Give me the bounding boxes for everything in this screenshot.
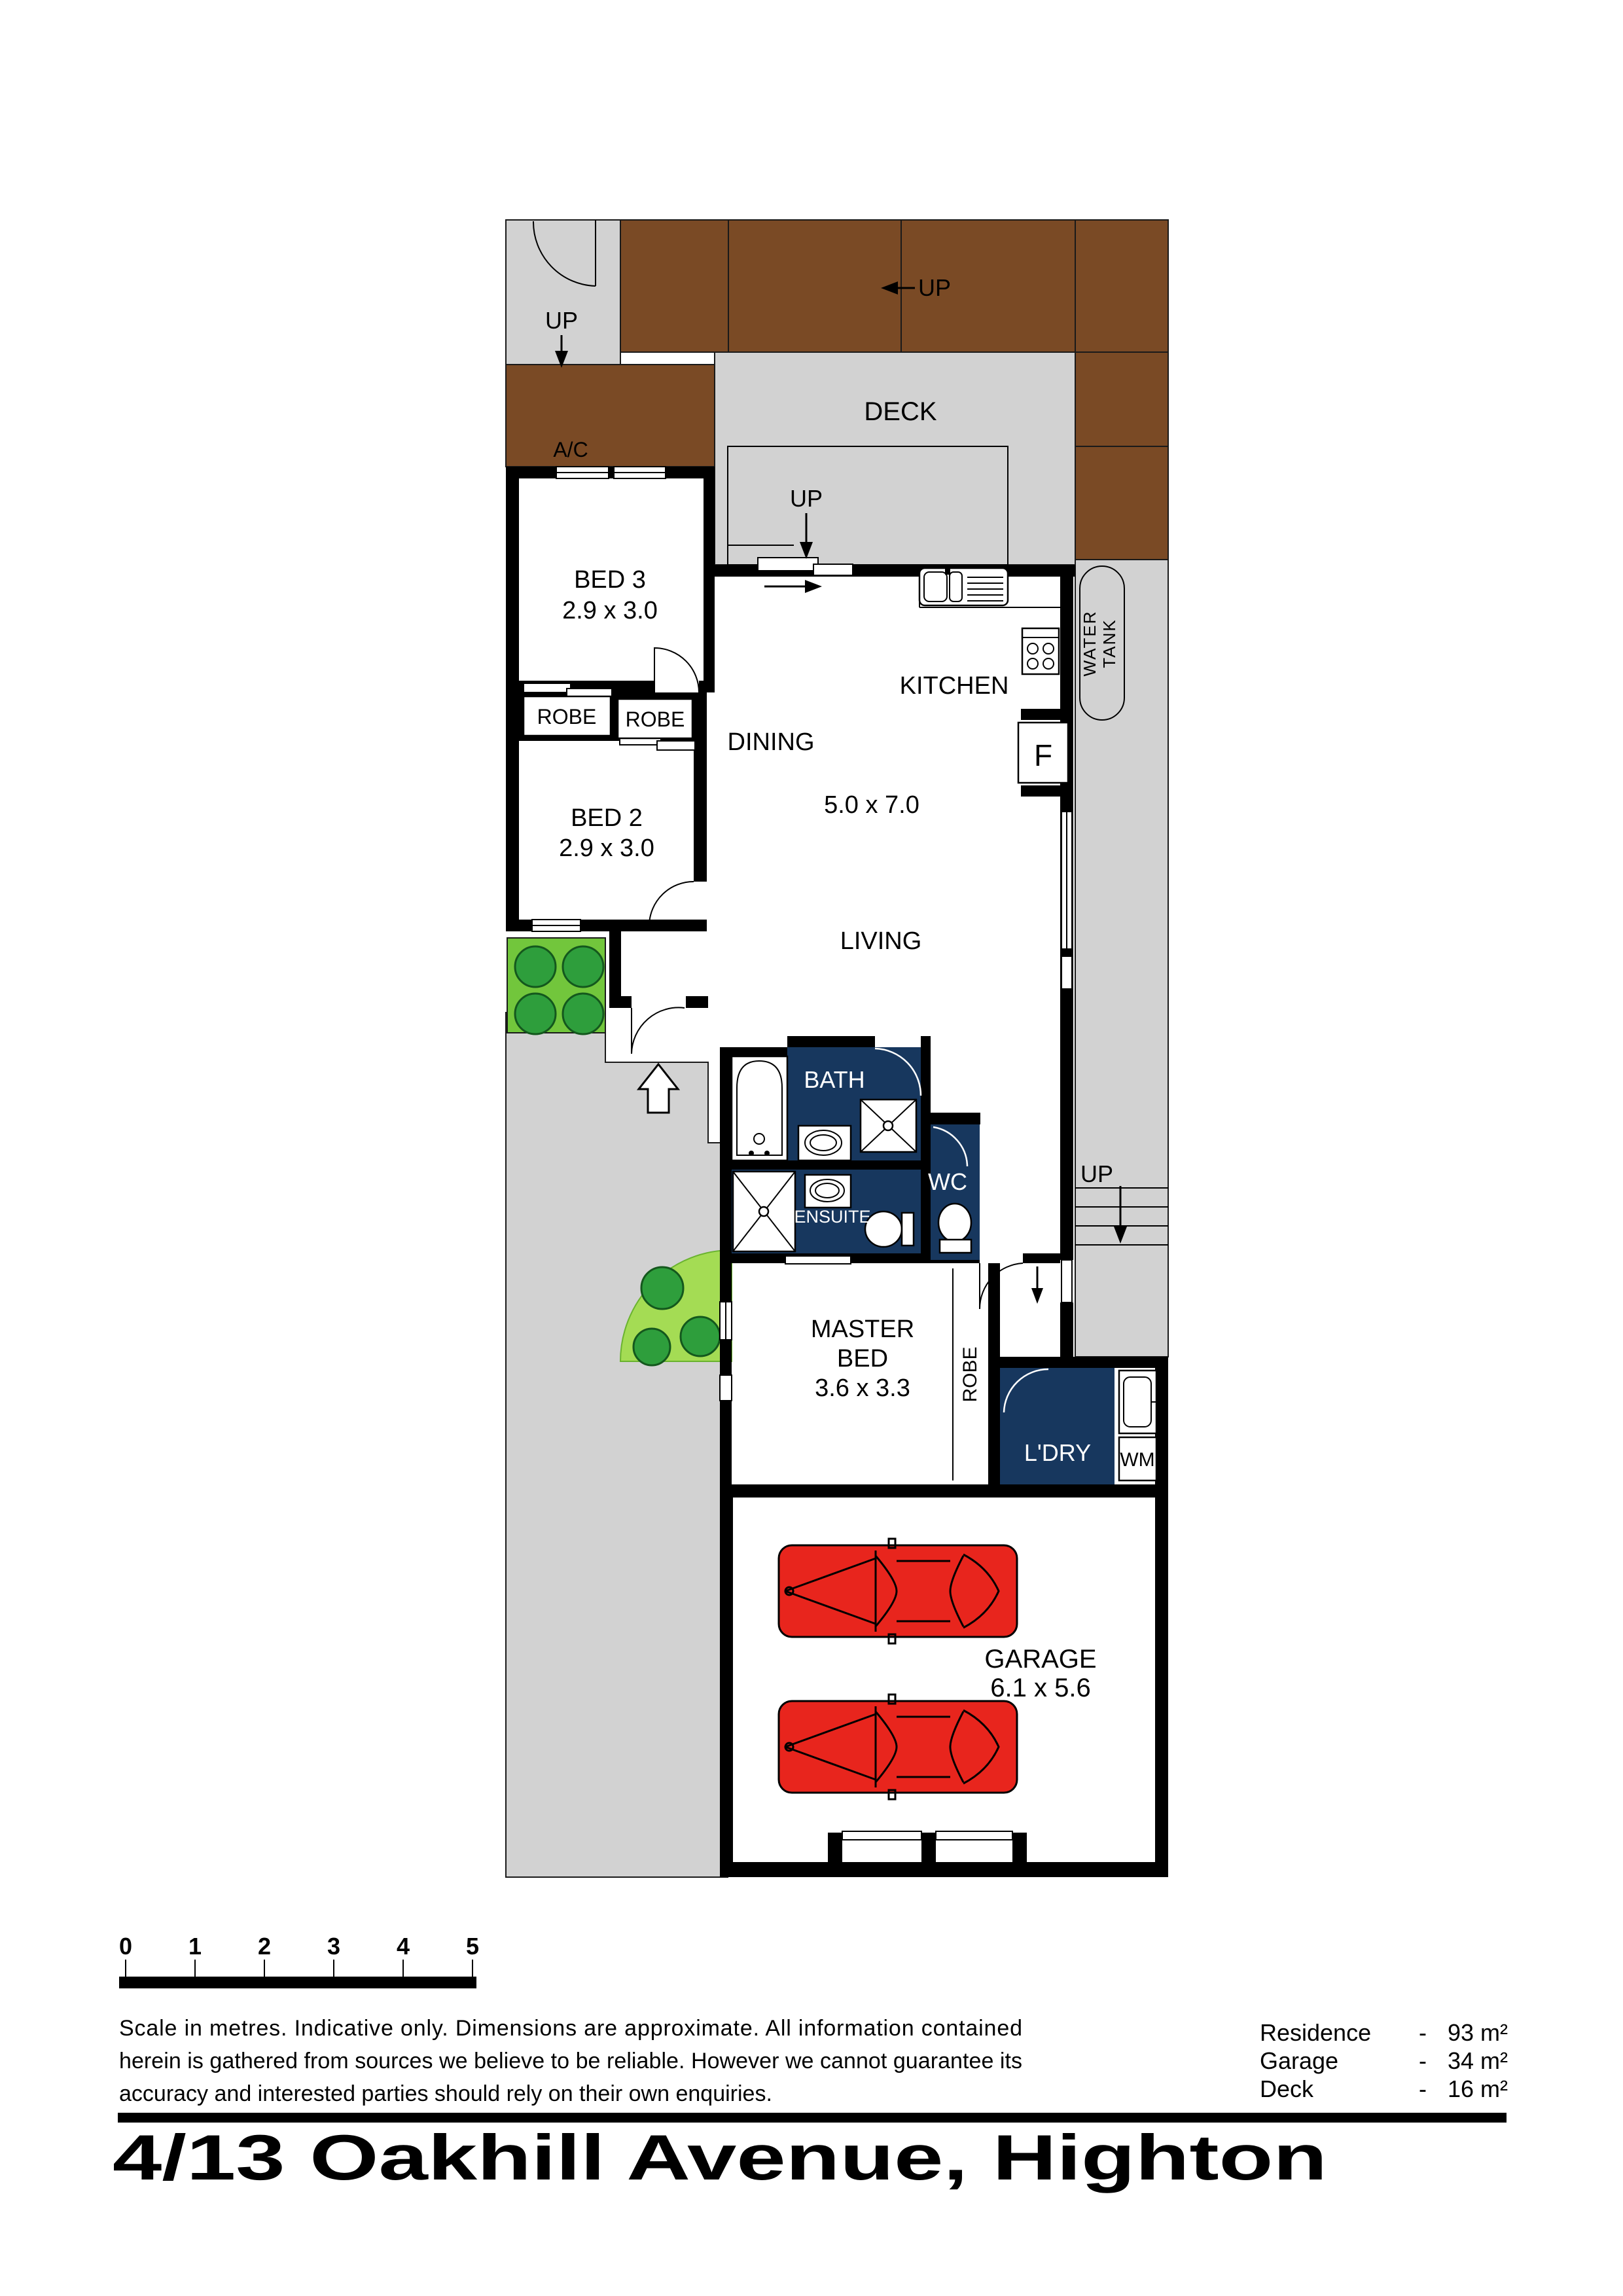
deck-up-label: UP <box>918 274 951 301</box>
page-title: 4/13 Oakhill Avenue, Highton <box>113 2121 1327 2193</box>
deck-entry-up-label: UP <box>790 485 823 512</box>
svg-text:TANK: TANK <box>1099 619 1119 668</box>
shrub <box>563 946 603 987</box>
kitchen-sink <box>919 568 1008 605</box>
porch <box>506 220 620 365</box>
footer: 0 1 2 3 4 5 Scale in metres. Indicative … <box>113 1933 1508 2193</box>
area-value: 93 m² <box>1448 2019 1508 2046</box>
areas-list: Residence - 93 m² Garage - 34 m² Deck - … <box>1260 2019 1508 2102</box>
area-label: Garage <box>1260 2047 1338 2074</box>
area-label: Residence <box>1260 2019 1371 2046</box>
robe-label: ROBE <box>626 708 685 731</box>
scale-tick-label: 5 <box>466 1933 479 1960</box>
floorplan-canvas: UP UP DECK A/C UP BED 3 2.9 x 3.0 ROBE R… <box>0 0 1623 2296</box>
scale-tick-label: 4 <box>397 1933 410 1960</box>
sliding-door <box>813 564 853 575</box>
garage-label: GARAGE <box>984 1645 1096 1674</box>
kitchen-label: KITCHEN <box>900 672 1009 700</box>
garage-dims: 6.1 x 5.6 <box>990 1674 1090 1702</box>
scale-tick-label: 2 <box>258 1933 271 1960</box>
bath-shower <box>861 1100 916 1152</box>
disclaimer-line: Scale in metres. Indicative only. Dimens… <box>119 2016 1022 2041</box>
area-value: 16 m² <box>1448 2075 1508 2102</box>
area-label: Deck <box>1260 2075 1314 2102</box>
sink-tap <box>945 567 950 575</box>
fridge-label: F <box>1034 738 1052 772</box>
master-dims: 3.6 x 3.3 <box>815 1374 910 1402</box>
area-dash: - <box>1419 2047 1427 2074</box>
scale-bar: 0 1 2 3 4 5 <box>119 1933 479 1988</box>
shrub <box>563 994 603 1034</box>
shrub <box>633 1329 670 1365</box>
ensuite-label: ENSUITE <box>794 1207 870 1227</box>
water-tank-label: WATER TANK <box>1080 611 1119 677</box>
ensuite-toilet <box>865 1211 914 1247</box>
car <box>779 1539 1017 1643</box>
living-dims: 5.0 x 7.0 <box>824 791 919 819</box>
scale-tick-label: 1 <box>188 1933 202 1960</box>
svg-text:ROBE: ROBE <box>959 1346 981 1402</box>
bed3-door <box>654 648 699 692</box>
deck-grey <box>715 352 1075 565</box>
laundry-label: L'DRY <box>1024 1439 1091 1466</box>
disclaimer-line: accuracy and interested parties should r… <box>119 2081 772 2106</box>
bed2-label: BED 2 <box>571 804 643 832</box>
floorplan-page: { "colors": { "navy": "#17375E", "brown"… <box>0 0 1623 2296</box>
area-dash: - <box>1419 2075 1427 2102</box>
disclaimer-line: herein is gathered from sources we belie… <box>119 2049 1022 2073</box>
car <box>779 1695 1017 1799</box>
area-dash: - <box>1419 2019 1427 2046</box>
wc-label: WC <box>928 1168 967 1195</box>
robe-label: ROBE <box>537 705 597 728</box>
scale-tick-label: 0 <box>119 1933 132 1960</box>
scale-tick-label: 3 <box>327 1933 340 1960</box>
sliding-door <box>758 558 818 571</box>
shrub <box>641 1267 683 1309</box>
shrub <box>515 946 556 987</box>
shrub <box>515 994 556 1034</box>
master-door <box>980 1263 1023 1309</box>
deck-label: DECK <box>864 397 936 426</box>
deck-left <box>506 365 715 467</box>
deck-right-column <box>1075 352 1168 560</box>
bed3-dims: 2.9 x 3.0 <box>562 597 658 624</box>
bed2-door <box>649 882 694 925</box>
stairs-up-label: UP <box>1080 1160 1113 1187</box>
ensuite-shower <box>733 1172 795 1251</box>
stove <box>1022 628 1059 674</box>
master-label-1: MASTER <box>811 1316 914 1343</box>
porch-up-label: UP <box>545 307 578 334</box>
front-door <box>632 1007 685 1054</box>
wm-label: WM <box>1120 1449 1154 1471</box>
disclaimer: Scale in metres. Indicative only. Dimens… <box>119 2016 1022 2106</box>
area-value: 34 m² <box>1448 2047 1508 2074</box>
svg-text:WATER: WATER <box>1080 611 1099 677</box>
shrub <box>681 1317 720 1356</box>
cars <box>779 1539 1017 1799</box>
bed3-label: BED 3 <box>574 566 646 594</box>
bed2-dims: 2.9 x 3.0 <box>559 834 654 862</box>
driveway <box>506 1013 728 1877</box>
dining-label: DINING <box>728 728 815 756</box>
bath-label: BATH <box>804 1066 865 1093</box>
ac-label: A/C <box>553 438 588 461</box>
laundry-room <box>1000 1368 1115 1484</box>
wc-toilet <box>938 1204 971 1253</box>
living-label: LIVING <box>840 927 922 955</box>
master-robe-label: ROBE <box>959 1346 981 1402</box>
master-label-2: BED <box>837 1345 888 1372</box>
